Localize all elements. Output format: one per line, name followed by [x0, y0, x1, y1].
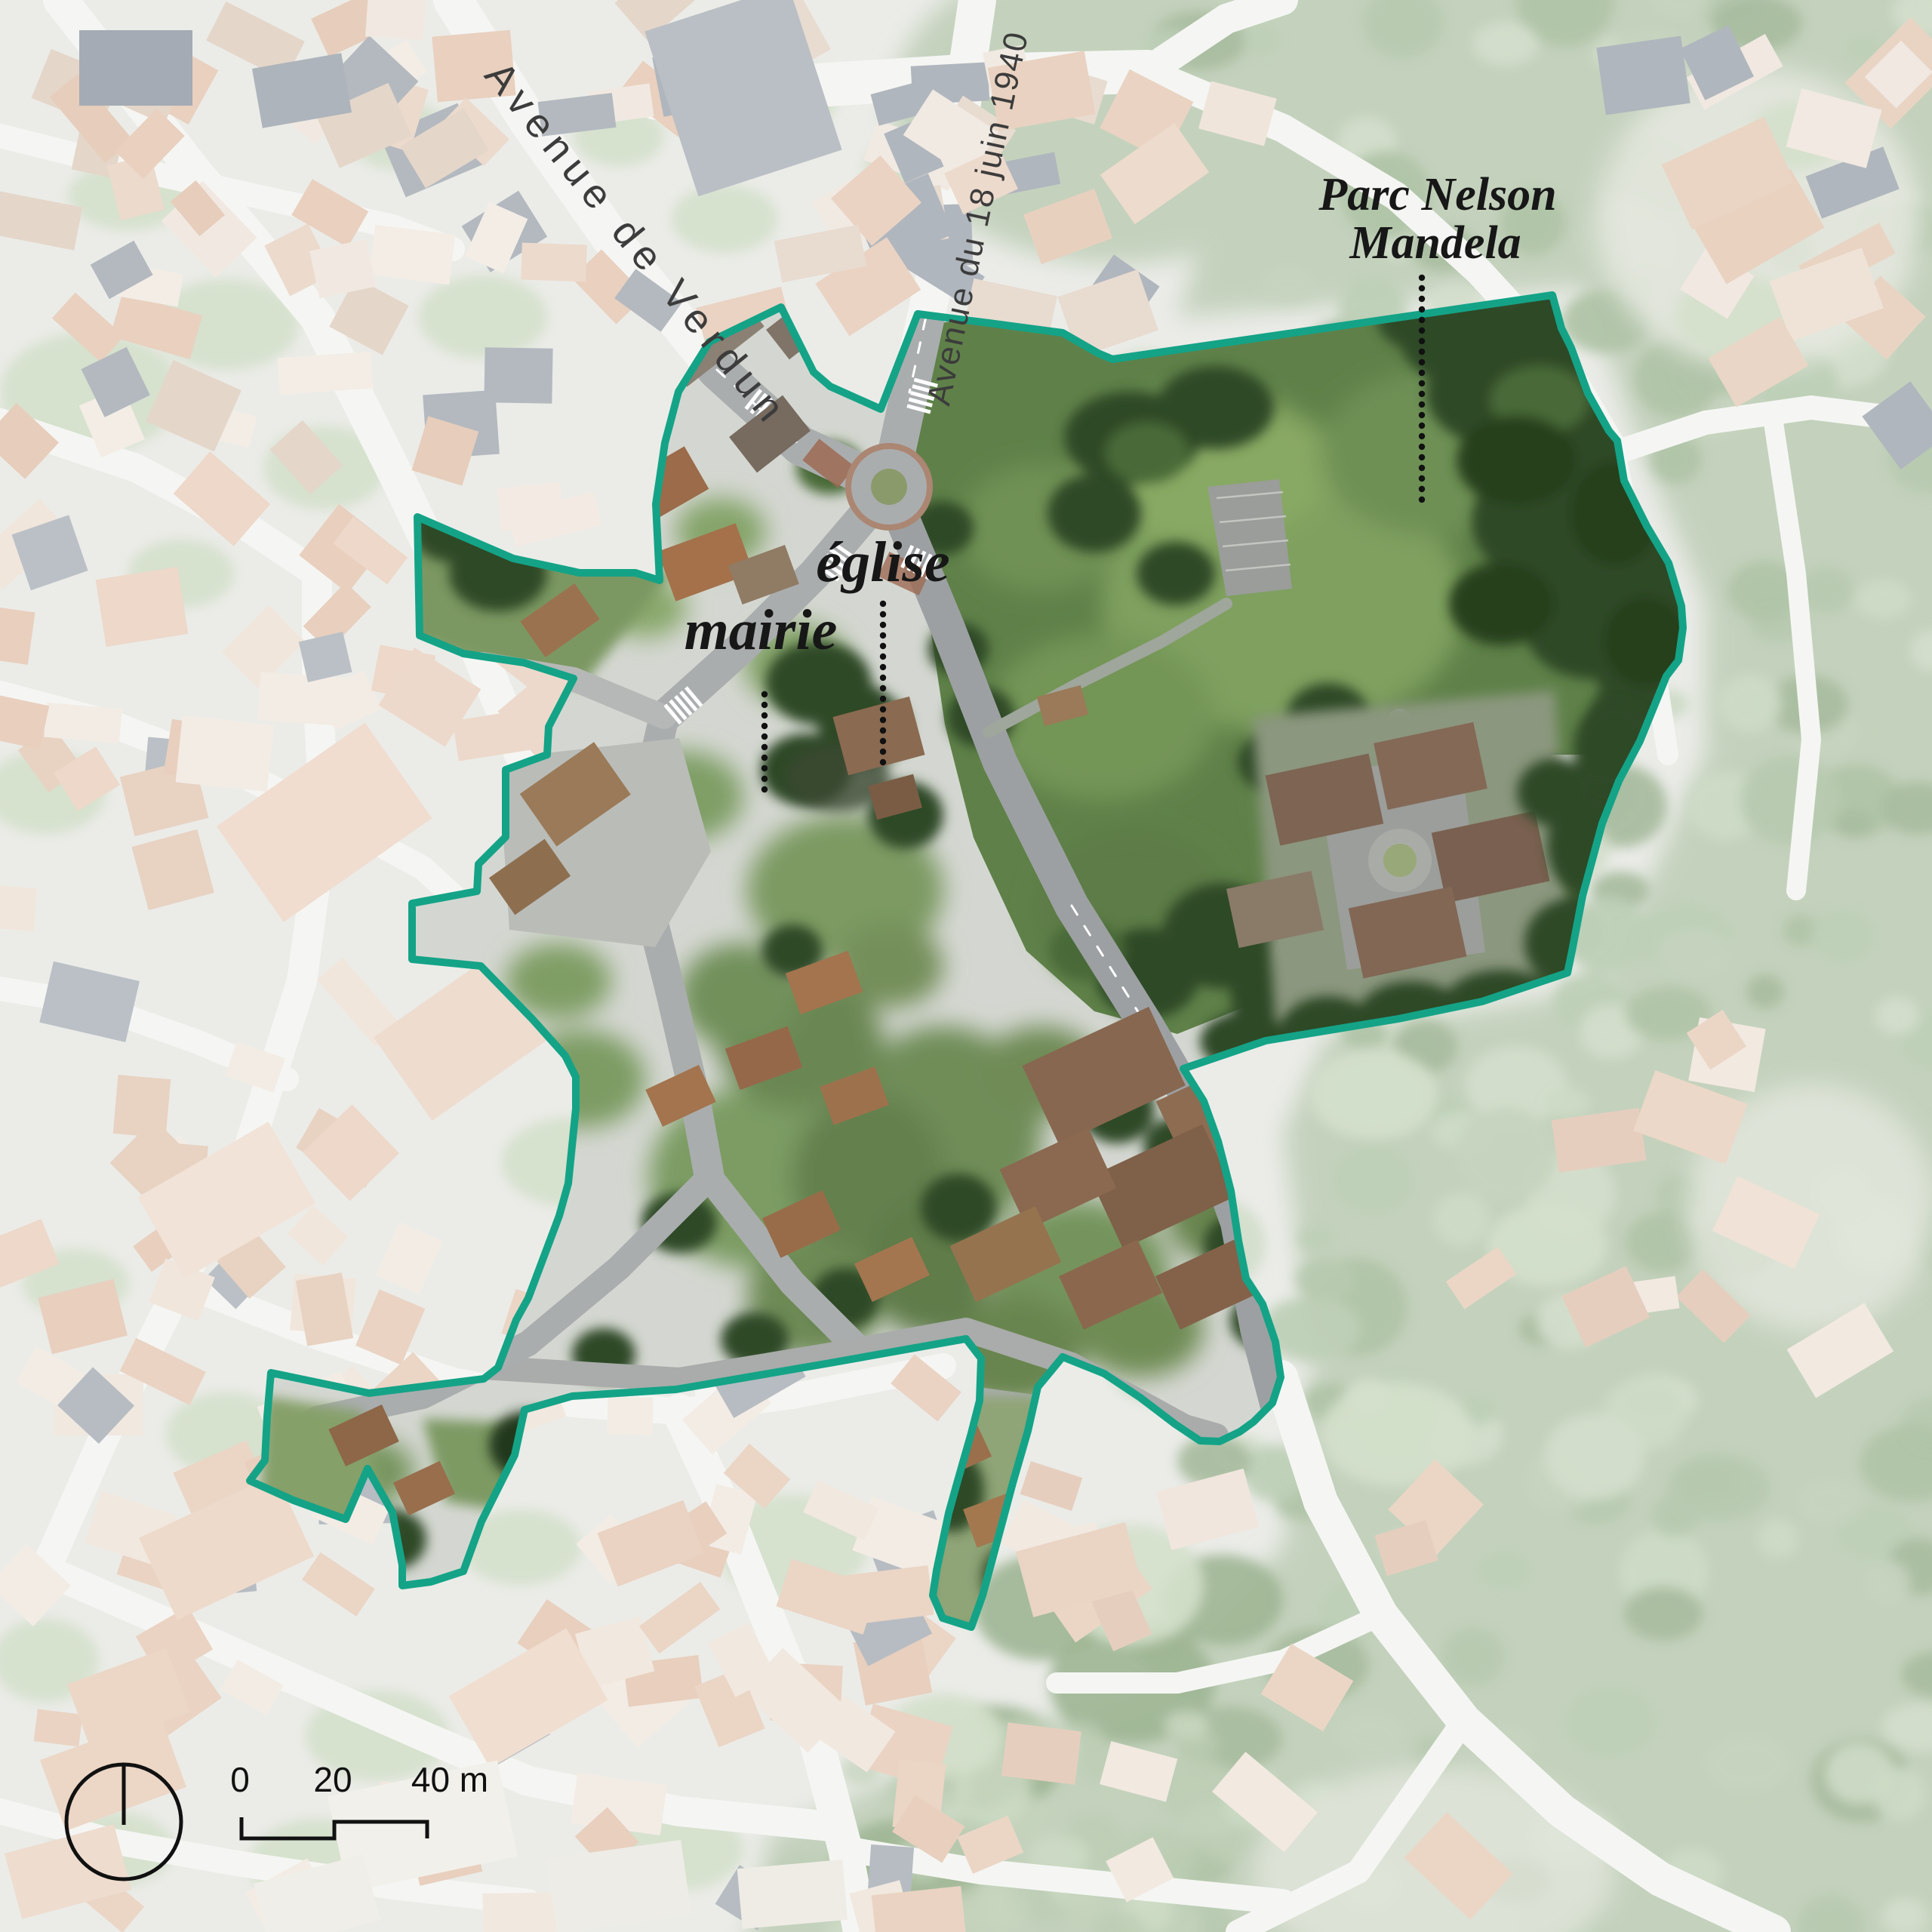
- svg-text:mairie: mairie: [685, 598, 838, 662]
- svg-text:Parc Nelson: Parc Nelson: [1318, 169, 1556, 220]
- svg-text:20: 20: [313, 1760, 352, 1799]
- svg-text:église: église: [816, 531, 949, 594]
- svg-text:40 m: 40 m: [411, 1760, 488, 1799]
- svg-text:Mandela: Mandela: [1349, 217, 1521, 269]
- svg-text:0: 0: [230, 1760, 250, 1799]
